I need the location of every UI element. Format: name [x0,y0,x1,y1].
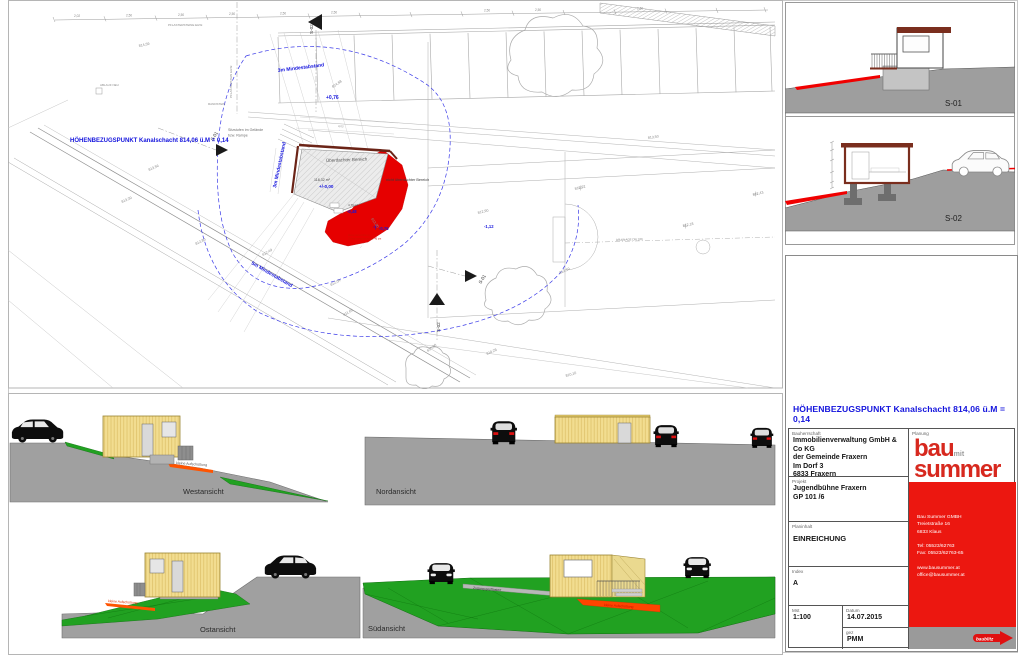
company-line: Treietstraße 16 [917,521,1016,528]
svg-text:RANDSTEIN: RANDSTEIN [208,102,225,106]
svg-text:2,50: 2,50 [229,12,235,16]
company-line: www.bausummer.at [917,565,1016,572]
door-east [172,561,183,592]
svg-text:bzw. Rampe: bzw. Rampe [228,134,248,138]
window-south [564,560,592,577]
title-block-table: Bauherrschaft Immobilienverwaltung GmbH … [788,428,1015,648]
label-s02: S-02 [945,214,962,223]
car-north-2 [654,425,679,447]
door-west [142,424,153,456]
project-cell: Projekt Jugendbühne Fraxern GP 101 /6 [789,477,909,522]
svg-text:baublitz: baublitz [976,637,994,642]
client-label: Bauherrschaft [792,431,908,436]
car-north-3 [750,428,773,448]
project-line: GP 101 /6 [793,494,908,503]
company-line: office@bausummer.at [917,572,1016,579]
drawn-by-label: gez [846,630,908,635]
company-line: Tel: 05523/62763 [917,543,1016,550]
plan-content-value: EINREICHUNG [793,535,908,544]
datum-note-titleblock: HÖHENBEZUGSPUNKT Kanalschacht 814,06 ü.M… [793,404,1015,424]
car-south-1 [428,563,455,584]
logo-footer-strip: baublitz [909,627,1016,649]
date-label: Datum [846,608,908,613]
svg-text:2,50: 2,50 [484,9,490,13]
company-line [917,558,1016,565]
svg-text:+0,76: +0,76 [326,95,339,101]
plan-content-label: Planinhalt [792,524,908,529]
svg-text:Sitzstufen im Gelände: Sitzstufen im Gelände [228,128,263,132]
label-west: Westansicht [183,487,225,496]
car-south-2 [684,557,711,578]
company-line: Fax: 05523/62763-65 [917,550,1016,557]
label-north: Nordansicht [376,487,417,496]
plan-content-cell: Planinhalt EINREICHUNG [789,522,909,567]
svg-text:S-02: S-02 [436,322,441,332]
bau-summer-logo: baumit summer [909,437,1016,482]
label-east: Ostansicht [200,625,236,634]
project-label: Projekt [792,479,908,484]
label-south: Südansicht [368,624,406,633]
company-info-block: Bau Summer GMBH Treietstraße 16 6833 Kla… [909,482,1016,627]
svg-text:ABLAUF NEU: ABLAUF NEU [100,83,119,87]
client-line: Immobilienverwaltung GmbH & Co KG [793,437,908,454]
datum-note: HÖHENBEZUGSPUNKT Kanalschacht 814,06 ü.M… [70,137,229,144]
company-line: Bau Summer GMBH [917,514,1016,521]
index-value: A [793,580,908,589]
company-line: 6833 Klaus [917,529,1016,536]
stair-block-west [178,446,193,460]
site-plan: 2,02 2,50 2,50 2,50 2,50 2,50 2,50 2,50 … [8,0,783,389]
building-s02 [845,146,909,183]
client-cell: Bauherrschaft Immobilienverwaltung GmbH … [789,429,909,477]
date-value: 14.07.2015 [847,614,908,623]
svg-text:2,50: 2,50 [126,14,132,18]
client-line: Im Dorf 3 [793,463,908,472]
planning-cell: Planung baumit summer Bau Summer GMBH Tr… [909,429,1016,649]
window-s01 [903,36,929,52]
svg-text:PFLASTERSTEINE EHW.: PFLASTERSTEINE EHW. [168,23,203,27]
svg-text:2,50: 2,50 [535,8,541,12]
svg-text:PFLASTERSTEIN EHW.: PFLASTERSTEIN EHW. [229,65,233,98]
svg-text:4,79 m²: 4,79 m² [348,203,358,207]
svg-text:4,03: 4,03 [338,124,344,128]
index-cell: Index A [789,567,909,606]
label-s01: S-01 [945,99,962,108]
svg-text:S-02: S-02 [309,24,314,34]
svg-text:Geländeanpassung ca. 40 cm: Geländeanpassung ca. 40 cm [348,238,381,241]
svg-text:nicht überdachter Bereich: nicht überdachter Bereich [386,178,429,182]
car-north-1 [491,421,517,444]
svg-text:2,50: 2,50 [331,11,337,15]
plan-sheet: 2,02 2,50 2,50 2,50 2,50 2,50 2,50 2,50 … [0,0,1024,655]
date-cell: Datum 14.07.2015 [843,606,909,628]
drawn-by-value: PMM [847,636,908,645]
svg-text:-0,48: -0,48 [347,209,357,214]
company-line [917,536,1016,543]
project-line: Jugendbühne Fraxern [793,485,908,494]
sections: S-01 [785,2,1015,245]
window-west [162,422,176,437]
svg-text:+/-0,00: +/-0,00 [319,184,334,189]
svg-text:2,50: 2,50 [280,11,286,15]
svg-text:2,02: 2,02 [74,14,80,18]
scale-label: Mst [792,608,842,613]
svg-text:118,32 m²: 118,32 m² [314,178,331,182]
logo-summer-text: summer [914,458,1016,482]
elevations: kleine Aufschüttung Westansicht Nordansi… [8,393,783,655]
svg-text:-0,76: -0,76 [379,226,389,231]
title-block-panel: HÖHENBEZUGSPUNKT Kanalschacht 814,06 ü.M… [785,255,1018,652]
building-north [555,417,650,443]
client-line: der Gemeinde Fraxern [793,454,908,463]
svg-text:2,50: 2,50 [178,13,184,17]
door-north [618,423,631,443]
drawn-by-cell: gez PMM [843,628,909,649]
baublitz-logo: baublitz [973,631,1013,645]
scale-value: 1:100 [793,614,842,623]
svg-text:-1,12: -1,12 [484,224,494,229]
index-label: Index [792,569,908,574]
window-east [150,559,164,573]
stair-block-east [134,583,145,596]
scale-cell: Mst 1:100 [789,606,843,649]
